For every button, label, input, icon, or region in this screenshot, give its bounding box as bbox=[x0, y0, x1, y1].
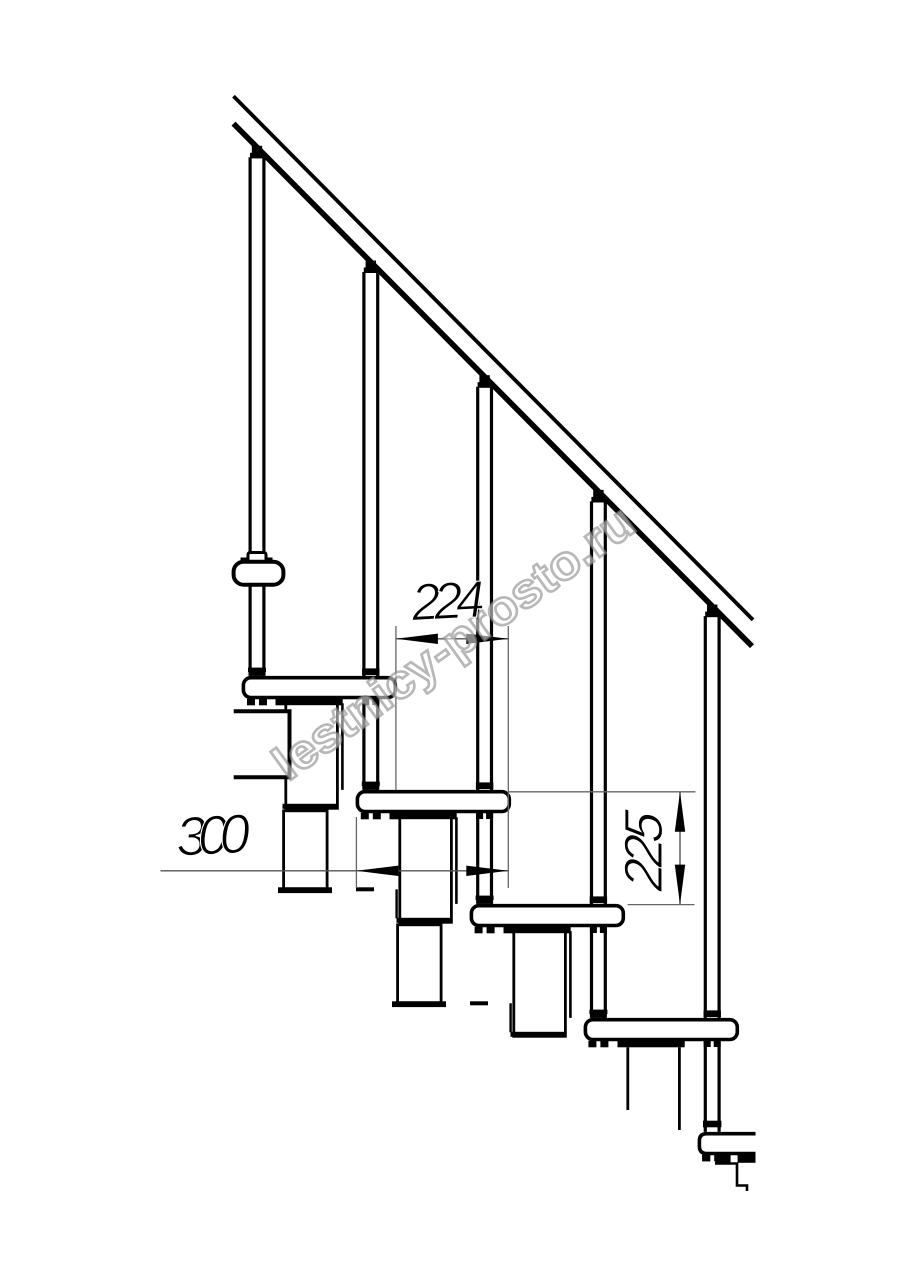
svg-text:225: 225 bbox=[614, 806, 674, 894]
svg-text:224: 224 bbox=[409, 571, 486, 633]
svg-text:300: 300 bbox=[174, 802, 252, 868]
